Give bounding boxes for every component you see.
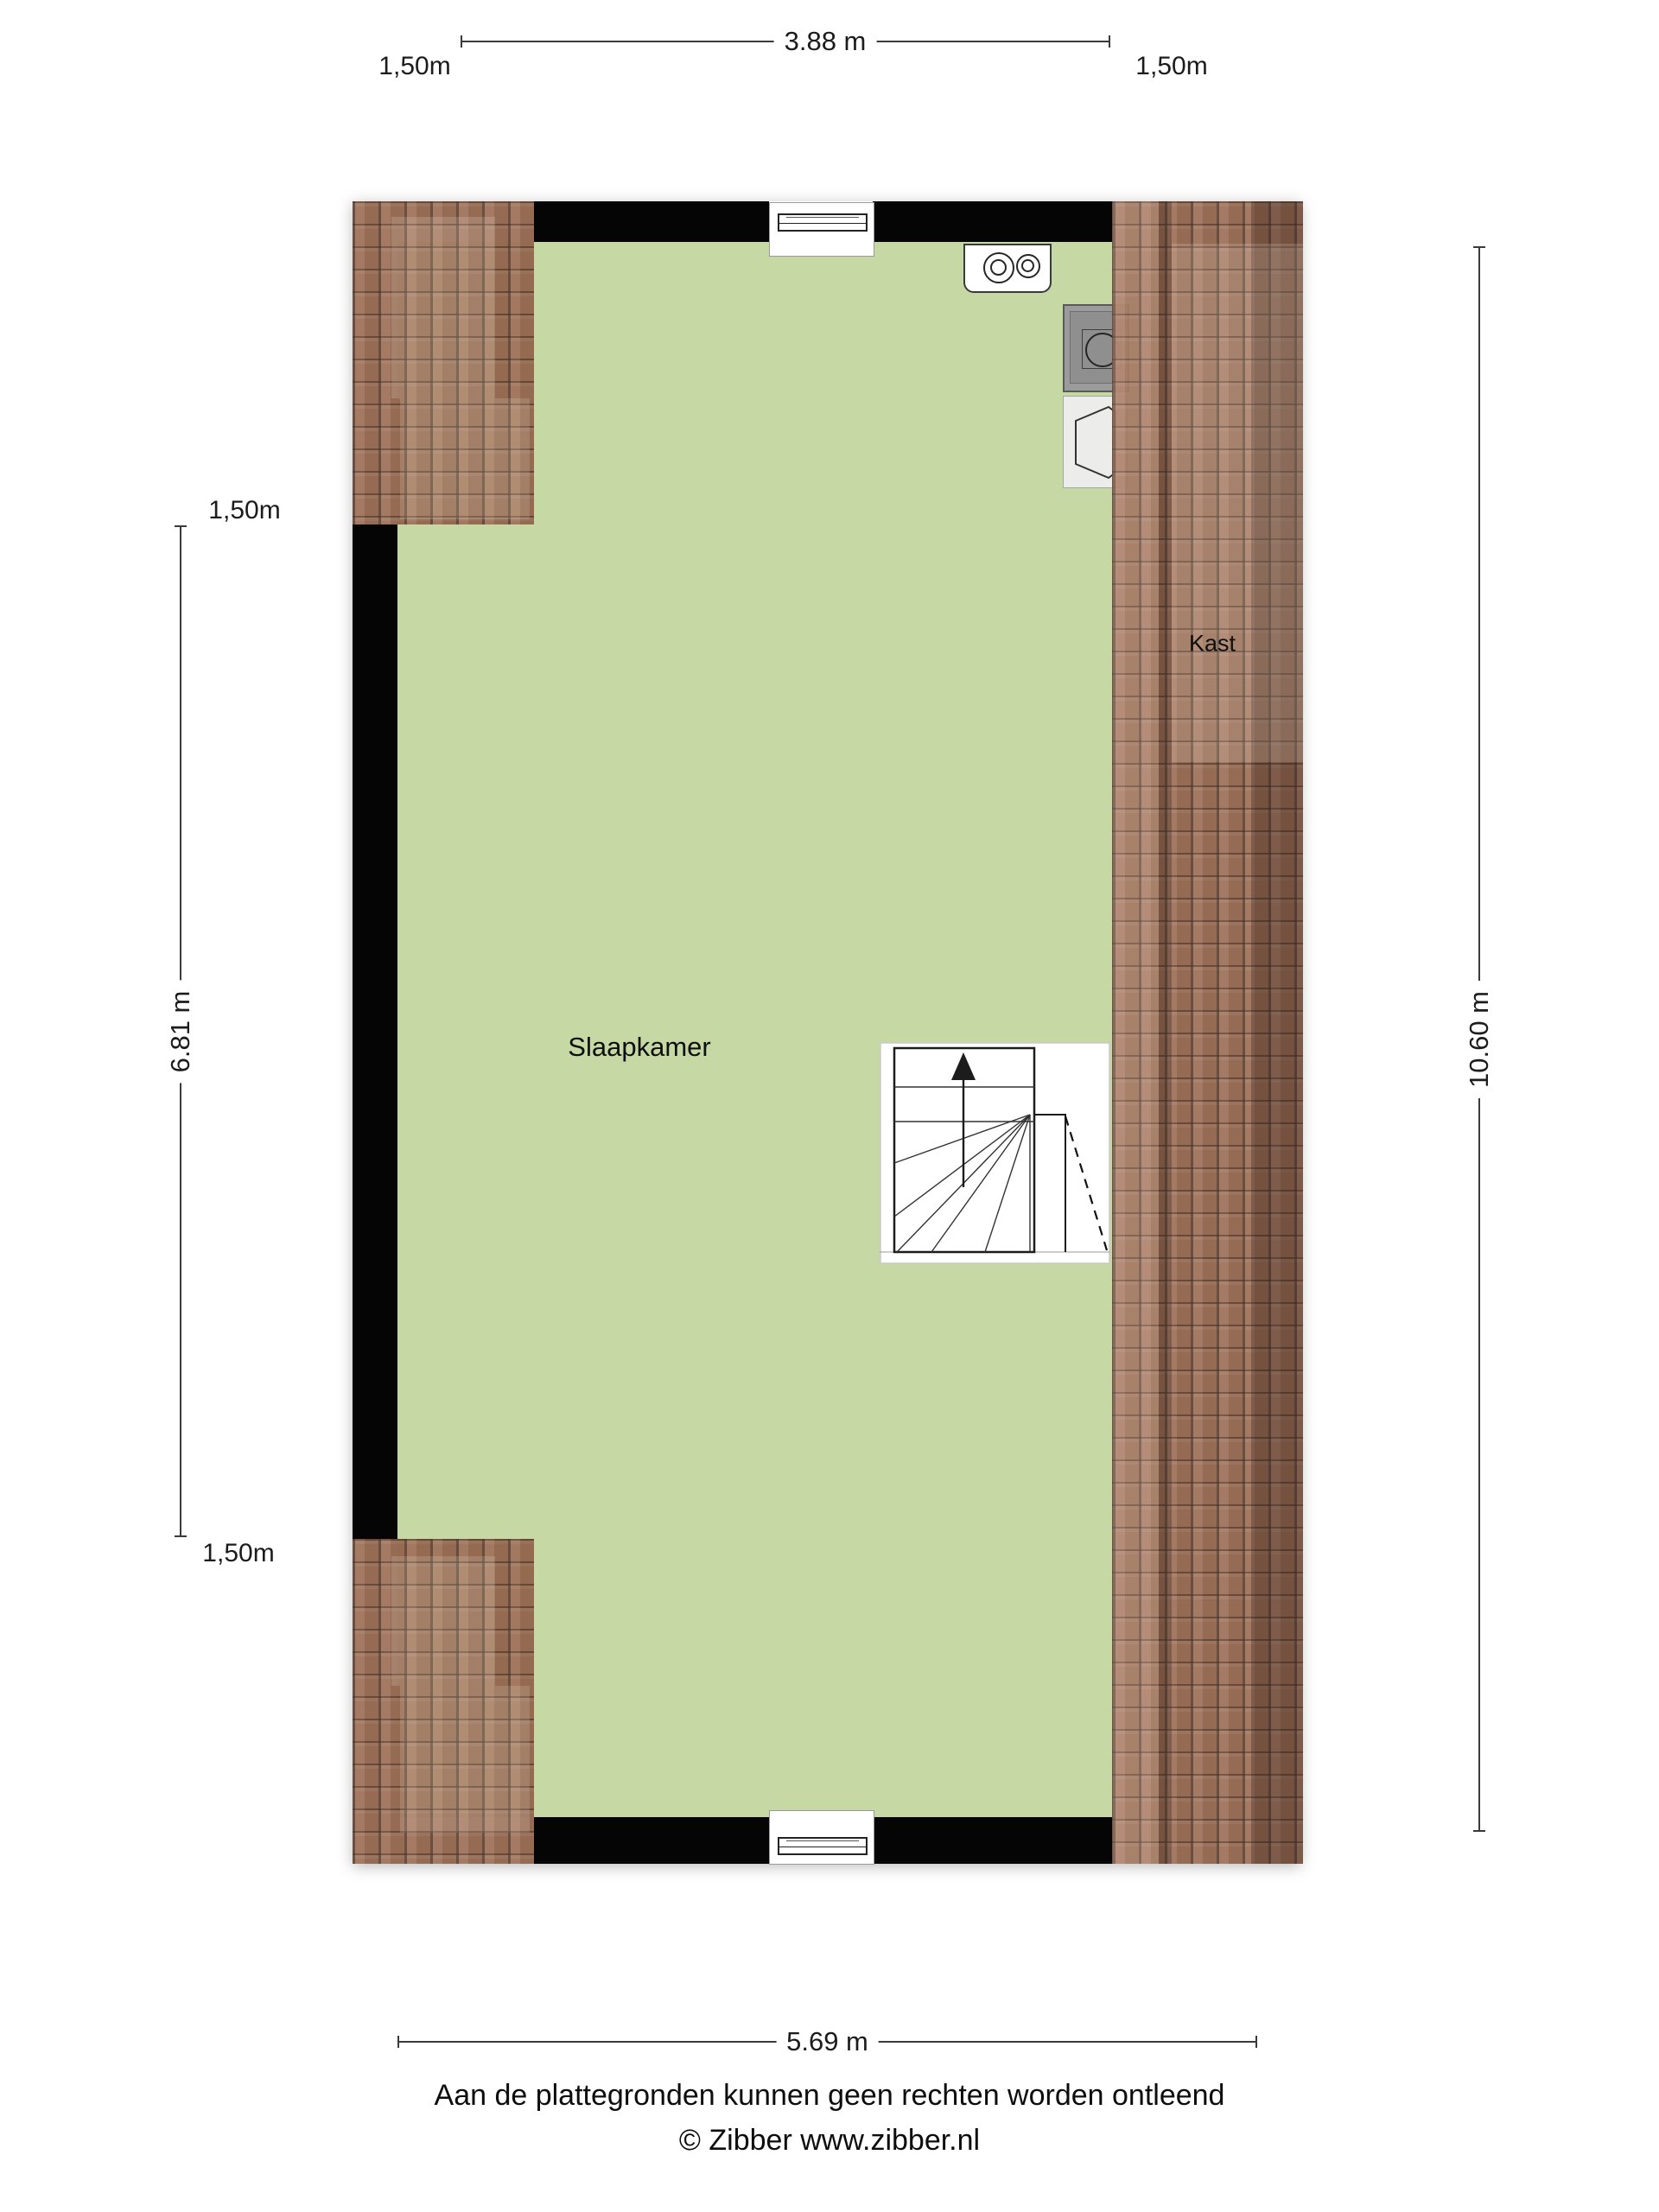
roof-tiles-bottom-left (353, 1539, 534, 1864)
wall-bottom-right-segment (873, 1817, 1112, 1864)
ceiling-height-label-left-bottom: 1,50m (202, 1539, 274, 1568)
floorplan: Slaapkamer Kast (353, 201, 1300, 1864)
dimension-value-top-width: 3.88 m (774, 26, 877, 57)
dimension-value-right-height: 10.60 m (1464, 980, 1495, 1097)
copyright-text: © Zibber www.zibber.nl (0, 2124, 1659, 2158)
roof-tiles-top-left (353, 201, 534, 524)
dimension-value-left-height: 6.81 m (165, 980, 196, 1083)
wall-bottom-left-segment (534, 1817, 769, 1864)
boiler-dial-small (1016, 254, 1040, 278)
dimension-line-right-height: 10.60 m (1473, 246, 1485, 1832)
window-top-icon (769, 202, 874, 257)
dimension-value-bottom-width: 5.69 m (776, 2026, 879, 2057)
ceiling-height-label-top-left: 1,50m (378, 52, 450, 81)
boiler-dial-large (983, 252, 1014, 283)
dimension-line-left-height: 6.81 m (175, 525, 187, 1537)
disclaimer-text: Aan de plattegronden kunnen geen rechten… (0, 2079, 1659, 2113)
wall-top-left-segment (534, 201, 769, 242)
room-label-slaapkamer: Slaapkamer (568, 1032, 710, 1063)
dimension-line-top-width: 3.88 m (461, 35, 1110, 48)
ceiling-height-label-top-right: 1,50m (1135, 52, 1207, 81)
room-label-kast: Kast (1189, 631, 1236, 658)
ceiling-height-label-left-top: 1,50m (208, 496, 280, 525)
window-bottom-icon (769, 1810, 874, 1865)
dimension-line-bottom-width: 5.69 m (397, 2036, 1257, 2048)
boiler-icon (963, 244, 1052, 293)
wall-left (353, 524, 397, 1539)
window-glass (778, 1837, 868, 1855)
roof-tiles-right (1112, 201, 1303, 1864)
wall-top-right-segment (873, 201, 1112, 242)
stairs-icon (880, 1042, 1110, 1264)
window-glass (778, 213, 868, 232)
